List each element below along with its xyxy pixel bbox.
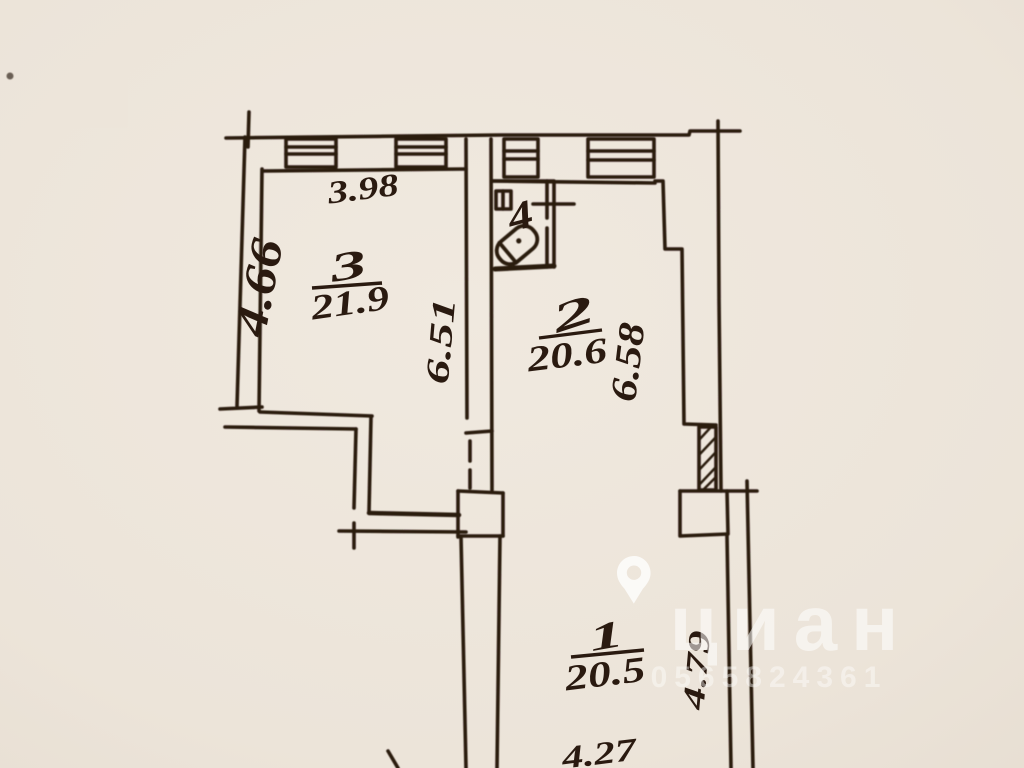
svg-text:0565824361: 0565824361: [651, 661, 888, 694]
svg-text:6.51: 6.51: [419, 297, 463, 386]
svg-text:циан: циан: [670, 579, 912, 667]
